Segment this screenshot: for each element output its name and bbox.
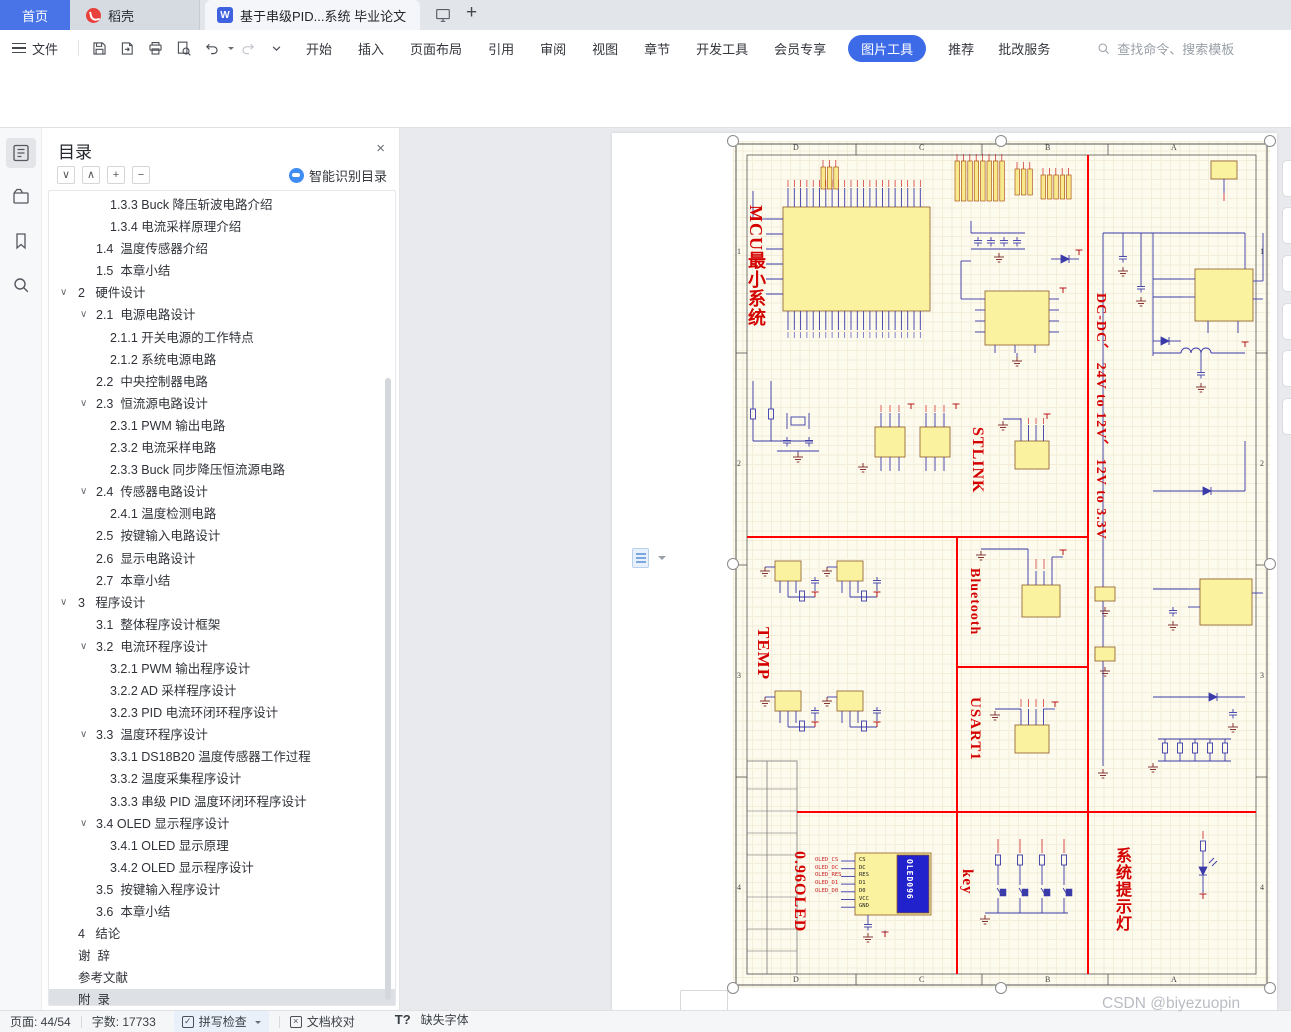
page-indicator[interactable]: 页面: 44/54: [0, 1011, 81, 1032]
float-tool-stub-2[interactable]: [1282, 207, 1291, 244]
toc-item-label: 3.5 按键输入程序设计: [49, 879, 395, 901]
toc-item[interactable]: 3.3.3 串级 PID 温度环闭环程序设计: [49, 791, 395, 813]
print-preview-button[interactable]: [172, 37, 194, 59]
schematic-section-label: key: [959, 869, 974, 895]
expand-all-button[interactable]: ∨: [57, 166, 75, 184]
toc-item-label: 参考文献: [49, 967, 395, 989]
sheet-border-letter: D: [793, 143, 799, 152]
toc-panel: 目录 × ∨ ∧ + − 智能识别目录 1.3.3 Buck 降压斩波电路介绍1…: [42, 128, 400, 1010]
toc-item-label: 3.3 温度环程序设计: [49, 724, 395, 746]
toc-item[interactable]: ∨2 硬件设计: [49, 282, 395, 304]
print-button[interactable]: [144, 37, 166, 59]
menu-start[interactable]: 开始: [306, 39, 332, 58]
toc-item[interactable]: 2.6 显示电路设计: [49, 548, 395, 570]
doc-proof-icon: ×: [290, 1016, 302, 1028]
schematic-artwork: [733, 141, 1270, 988]
menu-review[interactable]: 审阅: [540, 39, 566, 58]
multi-device-icon[interactable]: [434, 6, 452, 24]
resize-handle-bottom-middle[interactable]: [995, 982, 1007, 994]
oled-chip-label: OLED096: [905, 859, 914, 900]
schematic-section-label: 0.96OLED: [791, 851, 807, 932]
undo-button[interactable]: [200, 37, 222, 59]
docer-logo-icon: [86, 8, 101, 23]
toc-item[interactable]: 3.3.1 DS18B20 温度传感器工作过程: [49, 746, 395, 768]
sheet-border-number: 2: [737, 459, 741, 468]
sheet-border-letter: B: [1045, 975, 1050, 984]
new-tab-button[interactable]: +: [466, 2, 477, 24]
side-icon-rail: [0, 128, 42, 1010]
oled-net-label: OLED_CS: [815, 858, 838, 864]
toc-item-label: 附 录: [49, 989, 395, 1006]
toc-item[interactable]: 3.6 本章小结: [49, 901, 395, 923]
collapse-all-button[interactable]: ∧: [82, 166, 100, 184]
word-count[interactable]: 字数: 17733: [82, 1011, 166, 1032]
toc-item[interactable]: 3.2.3 PID 电流环闭环程序设计: [49, 702, 395, 724]
bookmark-button[interactable]: [6, 226, 36, 256]
sheet-border-number: 3: [737, 671, 741, 680]
toc-item[interactable]: 3.2.1 PWM 输出程序设计: [49, 658, 395, 680]
menu-recommend[interactable]: 推荐: [948, 39, 974, 58]
toc-item-label: 2.4 传感器电路设计: [49, 481, 395, 503]
tab-picture-tools-active[interactable]: 图片工具: [848, 35, 926, 62]
chevron-down-icon[interactable]: ∨: [60, 282, 67, 304]
float-tool-stub-4[interactable]: [1282, 303, 1291, 340]
toc-item[interactable]: 2.4.1 温度检测电路: [49, 503, 395, 525]
menu-bar: 文件 开始 插入 页面布局 引用 审阅 视图 章节 开发工具 会员专享 图片工具…: [0, 30, 1291, 66]
toc-item-label: 2.3.1 PWM 输出电路: [49, 415, 395, 437]
oled-pin-label: RES: [859, 873, 869, 879]
sheet-border-number: 1: [1260, 247, 1264, 256]
resize-handle-middle-right[interactable]: [1264, 558, 1276, 570]
toc-item-label: 3.2.3 PID 电流环闭环程序设计: [49, 702, 395, 724]
toc-item-label: 3.4.2 OLED 显示程序设计: [49, 857, 395, 879]
schematic-section-label: 系统提示灯: [1113, 847, 1129, 932]
oled-net-label: OLED_DC: [815, 866, 838, 872]
command-search[interactable]: 查找命令、搜索模板: [1096, 39, 1234, 58]
toc-item-label: 1.4 温度传感器介绍: [49, 238, 395, 260]
toc-item[interactable]: 4 结论: [49, 923, 395, 945]
document-image-schematic[interactable]: MCU最小系统DC-DC、 24V to 12V、 12V to 3.3VSTL…: [733, 141, 1270, 988]
oled-net-label: OLED_D0: [815, 889, 838, 895]
toc-item-label: 1.3.3 Buck 降压斩波电路介绍: [49, 194, 395, 216]
tab-docer[interactable]: 稻壳: [70, 0, 200, 30]
toc-item-label: 3.2 电流环程序设计: [49, 636, 395, 658]
chevron-down-icon[interactable]: ∨: [80, 724, 87, 746]
toc-item[interactable]: 2.3.3 Buck 同步降压恒流源电路: [49, 459, 395, 481]
toc-panel-button[interactable]: [6, 138, 36, 168]
anchor-caret-icon: [658, 556, 666, 564]
close-icon[interactable]: ×: [376, 140, 385, 157]
status-bar: 页面: 44/54 字数: 17733 ✓ 拼写检查 × 文档校对 T? 缺失字…: [0, 1010, 1291, 1032]
toc-item-label: 2.3 恒流源电路设计: [49, 393, 395, 415]
toc-item[interactable]: 3.3.2 温度采集程序设计: [49, 768, 395, 790]
toc-item-label: 3.2.2 AD 采样程序设计: [49, 680, 395, 702]
toc-item[interactable]: ∨3.3 温度环程序设计: [49, 724, 395, 746]
toolbar-collapse-caret[interactable]: [265, 37, 287, 59]
schematic-section-label: Bluetooth: [967, 568, 981, 635]
toc-item[interactable]: 2.2 中央控制器电路: [49, 371, 395, 393]
toc-list: 1.3.3 Buck 降压斩波电路介绍1.3.4 电流采样原理介绍1.4 温度传…: [48, 190, 396, 1006]
picture-tools-ribbon: 添加图片 替换图片 插入形状 压缩图片 清晰化 裁剪 ✓ 锁定纵横比 重设大小 …: [0, 66, 1291, 128]
page-edge-stub: [680, 990, 728, 1012]
toc-item[interactable]: 3.1 整体程序设计框架: [49, 614, 395, 636]
chevron-down-icon[interactable]: ∨: [80, 813, 87, 835]
oled-pin-label: DC: [859, 866, 866, 872]
toc-item-label: 3.6 本章小结: [49, 901, 395, 923]
sheet-border-letter: D: [793, 975, 799, 984]
output-button[interactable]: [116, 37, 138, 59]
schematic-section-label: USART1: [967, 697, 982, 761]
toc-item-label: 3.3.1 DS18B20 温度传感器工作过程: [49, 746, 395, 768]
toc-item[interactable]: 2.7 本章小结: [49, 570, 395, 592]
spell-check-button[interactable]: ✓ 拼写检查: [174, 1011, 269, 1032]
toc-item[interactable]: 附 录: [49, 989, 395, 1006]
toc-item-label: 2.1.1 开关电源的工作特点: [49, 327, 395, 349]
resize-handle-middle-left[interactable]: [727, 558, 739, 570]
smart-toc-link[interactable]: 智能识别目录: [289, 166, 387, 185]
zoom-out-toc-button[interactable]: −: [132, 166, 150, 184]
oled-pin-label: VCC: [859, 897, 869, 903]
menu-dev-tools[interactable]: 开发工具: [696, 39, 748, 58]
toc-item-label: 3 程序设计: [49, 592, 395, 614]
toc-item[interactable]: ∨3 程序设计: [49, 592, 395, 614]
chevron-down-icon[interactable]: ∨: [80, 304, 87, 326]
toc-item[interactable]: ∨3.2 电流环程序设计: [49, 636, 395, 658]
resize-handle-top-middle[interactable]: [995, 135, 1007, 147]
toc-item[interactable]: 1.3.4 电流采样原理介绍: [49, 216, 395, 238]
toc-item-label: 2.2 中央控制器电路: [49, 371, 395, 393]
tab-home[interactable]: 首页: [0, 0, 70, 30]
chevron-down-icon[interactable]: ∨: [80, 393, 87, 415]
toc-item-label: 2.1.2 系统电源电路: [49, 349, 395, 371]
toc-item[interactable]: 2.1.1 开关电源的工作特点: [49, 327, 395, 349]
sheet-border-number: 4: [737, 883, 741, 892]
toc-item[interactable]: ∨3.4 OLED 显示程序设计: [49, 813, 395, 835]
menu-insert[interactable]: 插入: [358, 39, 384, 58]
toc-item-label: 2.4.1 温度检测电路: [49, 503, 395, 525]
sheet-border-letter: C: [919, 143, 924, 152]
toc-item-label: 2.5 按键输入电路设计: [49, 525, 395, 547]
watermark: CSDN @biyezuopin: [1102, 995, 1240, 1013]
object-anchor-icon[interactable]: [632, 548, 649, 568]
toc-item-label: 3.4 OLED 显示程序设计: [49, 813, 395, 835]
toc-item-label: 2 硬件设计: [49, 282, 395, 304]
oled-pin-label: D0: [859, 889, 866, 895]
toc-item[interactable]: 3.4.2 OLED 显示程序设计: [49, 857, 395, 879]
oled-pin-label: CS: [859, 858, 866, 864]
toc-item[interactable]: 2.3.2 电流采样电路: [49, 437, 395, 459]
toc-item[interactable]: ∨2.1 电源电路设计: [49, 304, 395, 326]
menu-references[interactable]: 引用: [488, 39, 514, 58]
float-tool-stub-5[interactable]: [1282, 350, 1291, 387]
oled-pin-label: GND: [859, 904, 869, 910]
toc-item-label: 2.3.3 Buck 同步降压恒流源电路: [49, 459, 395, 481]
sheet-border-letter: A: [1171, 975, 1177, 984]
toc-item[interactable]: 1.5 本章小结: [49, 260, 395, 282]
missing-font-button[interactable]: T? 缺失字体: [385, 1011, 479, 1032]
toc-item[interactable]: 3.2.2 AD 采样程序设计: [49, 680, 395, 702]
sheet-border-letter: C: [919, 975, 924, 984]
schematic-section-label: MCU最小系统: [747, 205, 765, 327]
chapter-nav-button[interactable]: [6, 182, 36, 212]
writer-doc-icon: W: [217, 7, 233, 23]
missing-font-icon: T?: [395, 1012, 411, 1027]
toc-item-label: 3.3.3 串级 PID 温度环闭环程序设计: [49, 791, 395, 813]
search-icon: [1096, 41, 1111, 56]
toc-item[interactable]: ∨2.3 恒流源电路设计: [49, 393, 395, 415]
tab-document[interactable]: W 基于串级PID...系统 毕业论文: [205, 0, 420, 30]
file-menu[interactable]: 文件: [0, 39, 72, 58]
toc-item-label: 3.4.1 OLED 显示原理: [49, 835, 395, 857]
schematic-section-label: STLINK: [969, 427, 985, 493]
chevron-down-icon[interactable]: ∨: [80, 636, 87, 658]
toc-item[interactable]: 2.3.1 PWM 输出电路: [49, 415, 395, 437]
toc-scrollbar-thumb[interactable]: [385, 378, 391, 1000]
save-button[interactable]: [88, 37, 110, 59]
undo-caret[interactable]: [228, 47, 234, 53]
toc-item-label: 谢 辞: [49, 945, 395, 967]
spell-check-icon: ✓: [182, 1016, 194, 1028]
hamburger-icon: [12, 43, 26, 53]
oled-net-label: OLED_RES: [815, 873, 842, 879]
document-tab-title: 基于串级PID...系统 毕业论文: [240, 6, 406, 25]
sheet-border-number: 4: [1260, 883, 1264, 892]
float-tool-stub-3[interactable]: [1282, 255, 1291, 292]
toc-item[interactable]: 1.4 温度传感器介绍: [49, 238, 395, 260]
sheet-border-number: 2: [1260, 459, 1264, 468]
toc-item[interactable]: ∨2.4 传感器电路设计: [49, 481, 395, 503]
toc-item-label: 2.1 电源电路设计: [49, 304, 395, 326]
toc-item[interactable]: 1.3.3 Buck 降压斩波电路介绍: [49, 194, 395, 216]
toc-item[interactable]: 谢 辞: [49, 945, 395, 967]
resize-handle-top-right[interactable]: [1264, 135, 1276, 147]
robot-icon: [289, 168, 304, 183]
toc-item-label: 3.3.2 温度采集程序设计: [49, 768, 395, 790]
float-tool-stub-6[interactable]: [1282, 398, 1291, 435]
toc-item-label: 4 结论: [49, 923, 395, 945]
resize-handle-top-left[interactable]: [727, 135, 739, 147]
toc-item-label: 1.5 本章小结: [49, 260, 395, 282]
toc-item-label: 2.7 本章小结: [49, 570, 395, 592]
menu-member[interactable]: 会员专享: [774, 39, 826, 58]
toc-item-label: 1.3.4 电流采样原理介绍: [49, 216, 395, 238]
oled-net-label: OLED_D1: [815, 881, 838, 887]
resize-handle-bottom-left[interactable]: [727, 982, 739, 994]
schematic-section-label: DC-DC、 24V to 12V、 12V to 3.3V: [1093, 293, 1107, 540]
menu-page-layout[interactable]: 页面布局: [410, 39, 462, 58]
float-tool-stub-1[interactable]: [1282, 160, 1291, 197]
sheet-border-letter: B: [1045, 143, 1050, 152]
menu-section[interactable]: 章节: [644, 39, 670, 58]
oled-pin-label: D1: [859, 881, 866, 887]
toc-item[interactable]: 2.5 按键输入电路设计: [49, 525, 395, 547]
toc-item-label: 2.3.2 电流采样电路: [49, 437, 395, 459]
toc-panel-title: 目录: [58, 138, 92, 163]
schematic-section-label: TEMP: [755, 627, 772, 680]
toc-item-label: 3.2.1 PWM 输出程序设计: [49, 658, 395, 680]
menu-view[interactable]: 视图: [592, 39, 618, 58]
redo-button: [237, 37, 259, 59]
toc-item[interactable]: 2.1.2 系统电源电路: [49, 349, 395, 371]
toc-item-label: 2.6 显示电路设计: [49, 548, 395, 570]
doc-proof-button[interactable]: × 文档校对: [280, 1011, 365, 1032]
chevron-down-icon[interactable]: ∨: [80, 481, 87, 503]
sheet-border-number: 3: [1260, 671, 1264, 680]
toc-item[interactable]: 3.5 按键输入程序设计: [49, 879, 395, 901]
menu-correction-service[interactable]: 批改服务: [998, 39, 1050, 58]
zoom-in-toc-button[interactable]: +: [107, 166, 125, 184]
toc-item[interactable]: 参考文献: [49, 967, 395, 989]
window-tab-bar: 首页 稻壳 W 基于串级PID...系统 毕业论文 +: [0, 0, 1291, 30]
toc-item[interactable]: 3.4.1 OLED 显示原理: [49, 835, 395, 857]
sheet-border-number: 1: [737, 247, 741, 256]
find-button[interactable]: [6, 270, 36, 300]
chevron-down-icon[interactable]: ∨: [60, 592, 67, 614]
resize-handle-bottom-right[interactable]: [1264, 982, 1276, 994]
sheet-border-letter: A: [1171, 143, 1177, 152]
toc-item-label: 3.1 整体程序设计框架: [49, 614, 395, 636]
